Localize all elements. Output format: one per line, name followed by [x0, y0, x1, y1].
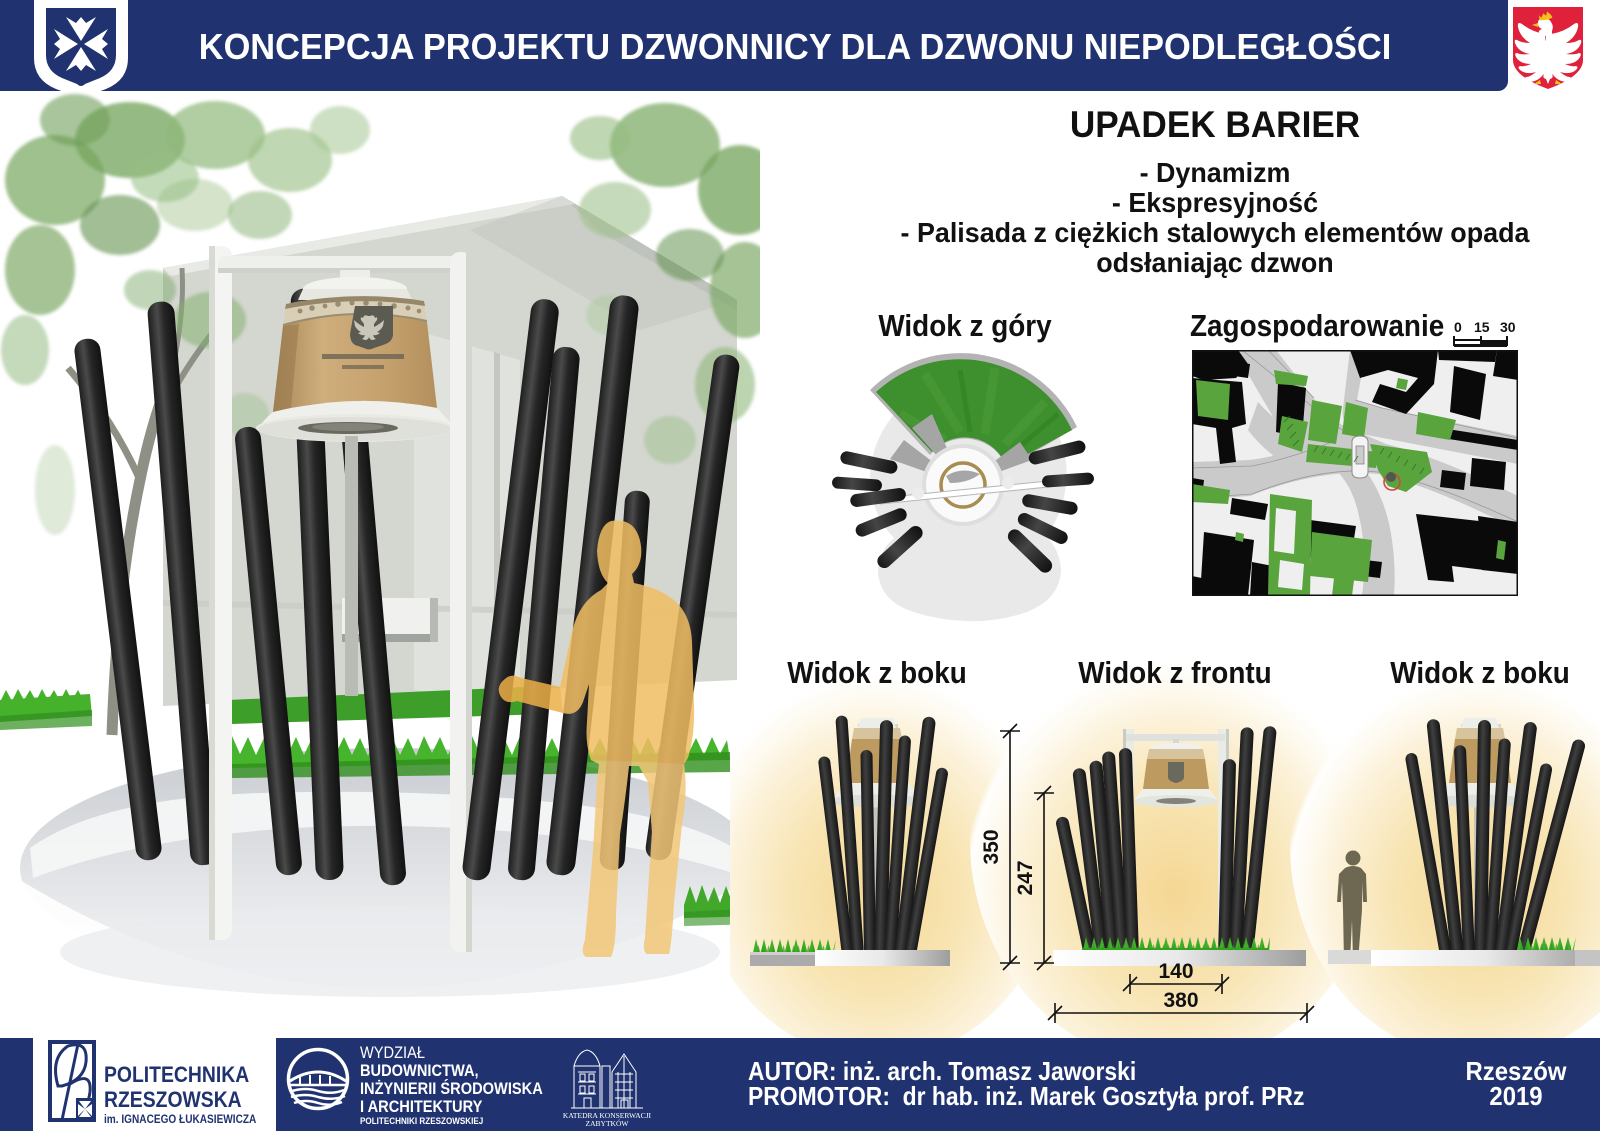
- svg-text:140: 140: [1158, 960, 1193, 983]
- svg-text:15: 15: [1474, 320, 1490, 335]
- svg-text:0: 0: [1454, 320, 1462, 335]
- svg-text:380: 380: [1163, 989, 1198, 1012]
- svg-text:ZABYTKÓW: ZABYTKÓW: [586, 1118, 630, 1128]
- svg-text:30: 30: [1500, 320, 1516, 335]
- svg-text:247: 247: [1014, 860, 1037, 895]
- svg-text:350: 350: [980, 829, 1003, 864]
